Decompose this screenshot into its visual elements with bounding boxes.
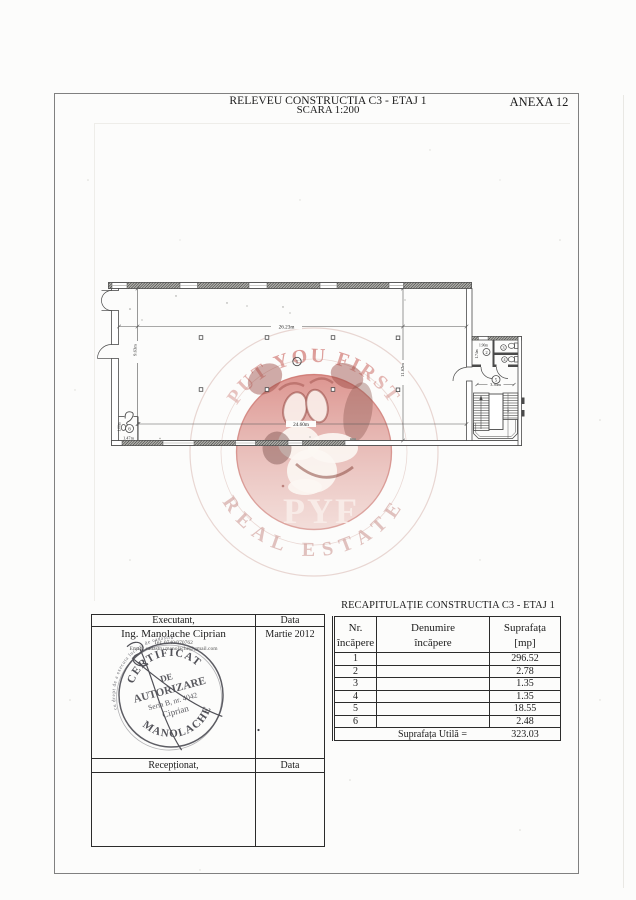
svg-text:1.47m: 1.47m bbox=[123, 436, 135, 441]
svg-text:24.60m: 24.60m bbox=[293, 422, 309, 428]
svg-text:1.74m: 1.74m bbox=[475, 349, 479, 358]
svg-text:DE: DE bbox=[159, 671, 174, 684]
svg-text:26.23m: 26.23m bbox=[279, 325, 295, 331]
svg-text:2: 2 bbox=[485, 350, 488, 355]
svg-text:4: 4 bbox=[504, 357, 506, 362]
svg-text:1.90m: 1.90m bbox=[479, 344, 488, 348]
svg-text:1: 1 bbox=[296, 360, 299, 366]
svg-text:9.63m: 9.63m bbox=[132, 344, 137, 356]
svg-text:3: 3 bbox=[503, 345, 505, 350]
svg-text:1.55: 1.55 bbox=[506, 407, 510, 413]
svg-text:11.62m: 11.62m bbox=[400, 363, 405, 377]
svg-text:1.00m: 1.00m bbox=[117, 422, 121, 431]
svg-text:PYF: PYF bbox=[283, 491, 359, 531]
svg-text:6: 6 bbox=[128, 428, 131, 433]
